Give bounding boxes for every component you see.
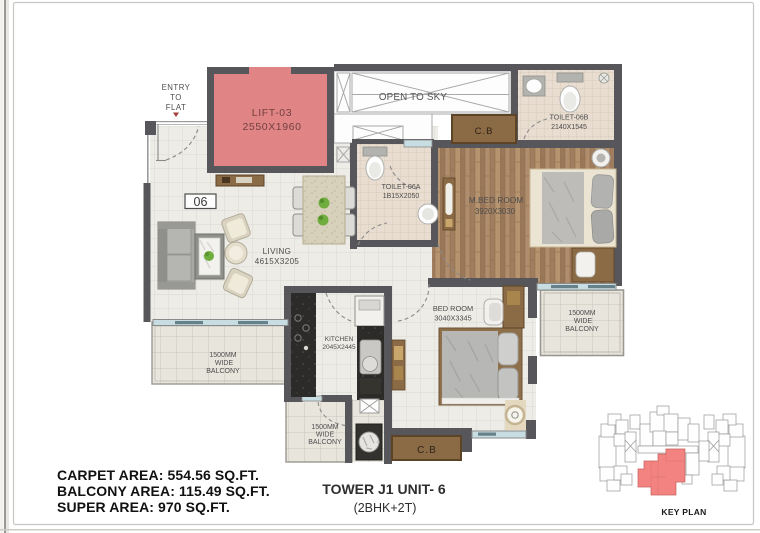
svg-text:1500MM: 1500MM [568, 310, 595, 317]
svg-text:FLAT: FLAT [166, 103, 186, 112]
svg-text:M.BED ROOM: M.BED ROOM [469, 195, 523, 205]
svg-text:C.B: C.B [417, 445, 437, 456]
svg-text:BALCONY AREA: 115.49 SQ.FT.: BALCONY AREA: 115.49 SQ.FT. [57, 483, 270, 499]
svg-text:2045X2445: 2045X2445 [322, 344, 356, 351]
svg-text:TO: TO [170, 93, 182, 102]
svg-text:3920X3030: 3920X3030 [475, 207, 516, 216]
svg-text:KEY PLAN: KEY PLAN [661, 507, 706, 517]
svg-text:TOILET-06B: TOILET-06B [550, 115, 589, 122]
svg-text:LIFT-03: LIFT-03 [252, 107, 292, 119]
svg-text:BED ROOM: BED ROOM [433, 304, 473, 313]
svg-text:OPEN TO SKY: OPEN TO SKY [379, 92, 448, 103]
svg-text:3040X3345: 3040X3345 [434, 314, 471, 323]
svg-text:WIDE: WIDE [215, 360, 234, 367]
svg-text:CARPET AREA: 554.56 SQ.FT.: CARPET AREA: 554.56 SQ.FT. [57, 467, 259, 483]
svg-text:1B15X2050: 1B15X2050 [383, 193, 420, 200]
svg-text:ENTRY: ENTRY [162, 83, 191, 92]
svg-text:1500MM: 1500MM [209, 352, 236, 359]
svg-text:4615X3205: 4615X3205 [255, 257, 300, 266]
svg-text:TOWER J1 UNIT- 6: TOWER J1 UNIT- 6 [322, 481, 446, 497]
svg-text:TOILET-06A: TOILET-06A [382, 184, 421, 191]
svg-text:WIDE: WIDE [316, 432, 335, 439]
svg-text:(2BHK+2T): (2BHK+2T) [354, 501, 417, 515]
svg-text:2550X1960: 2550X1960 [242, 121, 301, 133]
svg-text:06: 06 [194, 195, 208, 209]
svg-text:BALCONY: BALCONY [206, 368, 240, 375]
svg-text:2140X1545: 2140X1545 [551, 124, 587, 131]
svg-text:1500MM: 1500MM [311, 424, 338, 431]
svg-text:BALCONY: BALCONY [308, 439, 342, 446]
svg-text:C.B: C.B [475, 126, 494, 137]
svg-text:WIDE: WIDE [574, 318, 593, 325]
svg-text:SUPER AREA: 970 SQ.FT.: SUPER AREA: 970 SQ.FT. [57, 499, 230, 515]
svg-text:KITCHEN: KITCHEN [325, 336, 354, 343]
svg-text:BALCONY: BALCONY [565, 326, 599, 333]
svg-text:LIVING: LIVING [263, 247, 292, 256]
